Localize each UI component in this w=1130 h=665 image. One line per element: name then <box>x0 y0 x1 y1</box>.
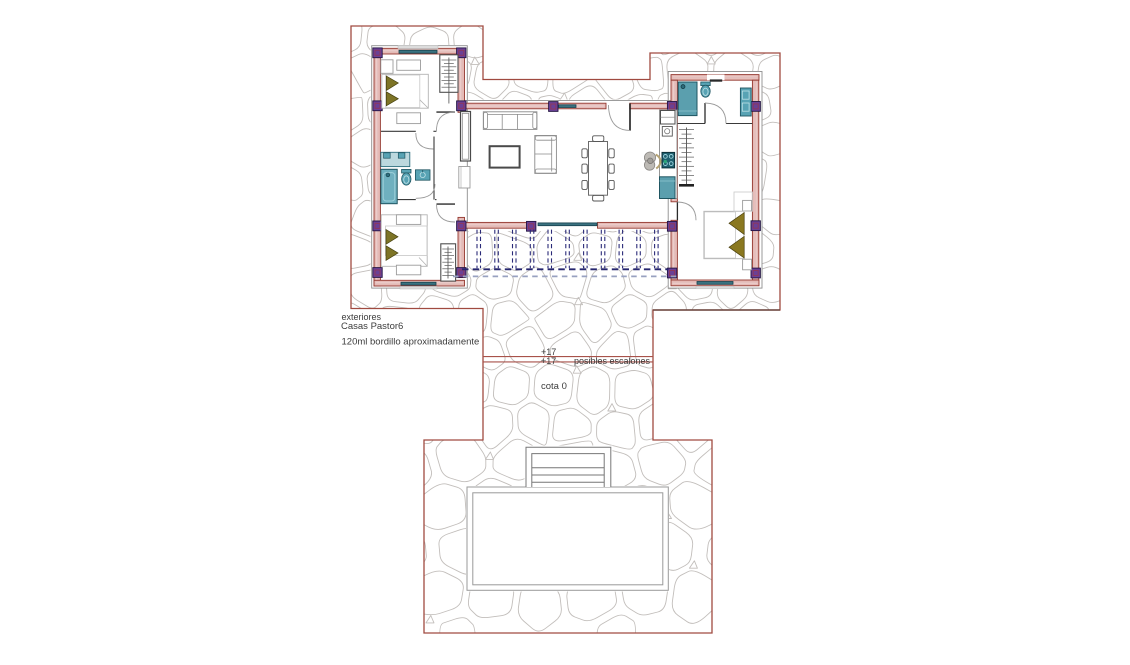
svg-text:120ml bordillo aproximadamente: 120ml bordillo aproximadamente <box>342 337 480 348</box>
svg-text:cota 0: cota 0 <box>541 381 567 392</box>
svg-text:Casas Pastor6: Casas Pastor6 <box>341 321 403 332</box>
svg-text:posibles escalones: posibles escalones <box>574 356 651 366</box>
svg-text:+17: +17 <box>541 356 556 366</box>
